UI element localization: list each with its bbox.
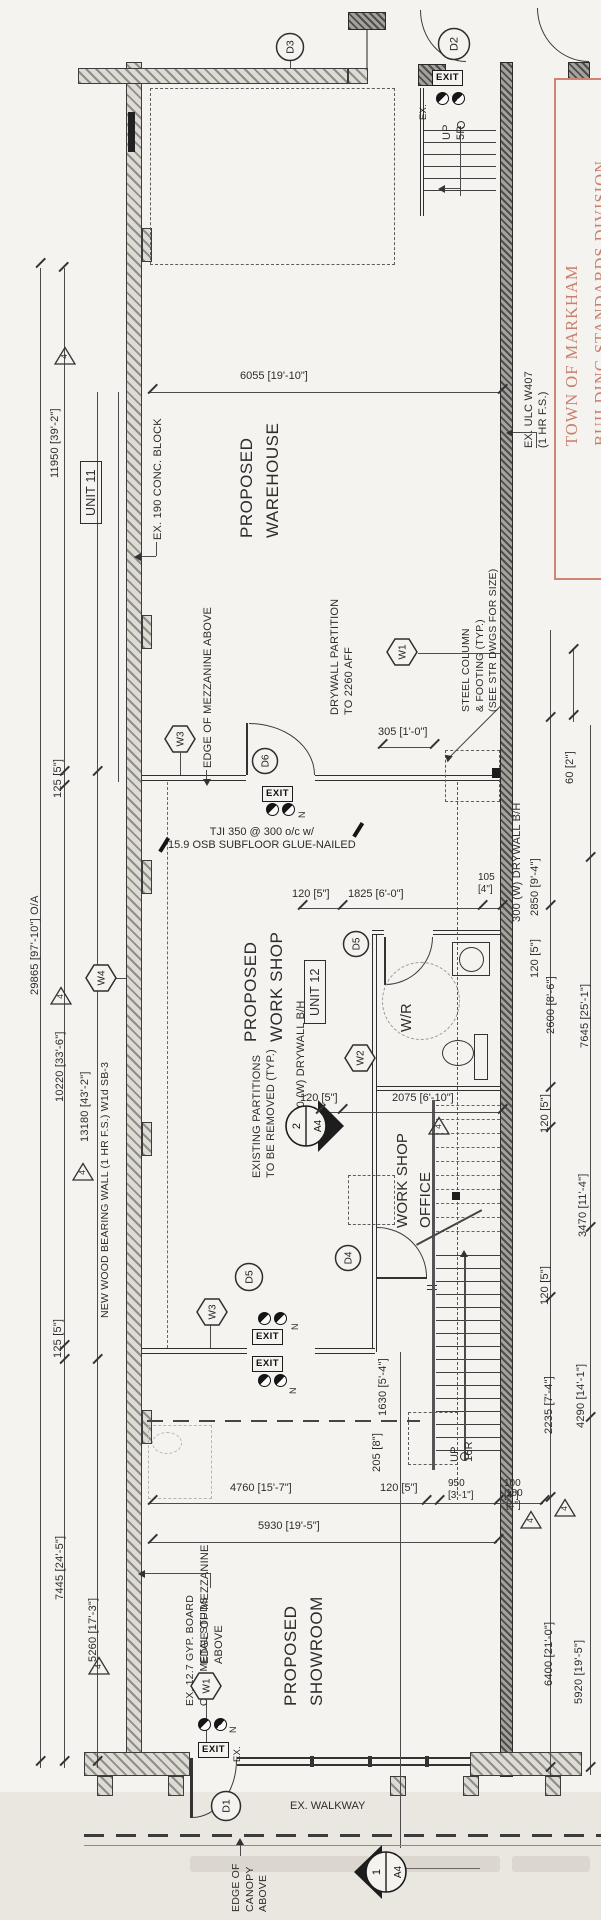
exit-light <box>282 803 295 816</box>
exit-light <box>452 92 465 105</box>
dim-2075: 2075 [6'-10"] <box>392 1092 454 1105</box>
dim-60: 60 [2"] <box>563 751 577 784</box>
door-tag-d2-label: D2 <box>449 37 461 51</box>
exit-light <box>258 1374 271 1387</box>
note-existing-partitions: EXISTING PARTITIONS TO BE REMOVED (TYP.) <box>250 1049 279 1178</box>
revision-label: 4 <box>525 1518 535 1523</box>
stair-tread <box>436 1268 500 1269</box>
revision-triangle: 4 <box>72 1162 94 1182</box>
leader-arrow <box>203 779 211 786</box>
wall-tag-w4: W4 <box>85 964 117 992</box>
wall-tag-w1b: W1 <box>190 1672 222 1700</box>
revision-label: 4 <box>559 1506 569 1511</box>
revision-label: 4 <box>93 1664 103 1669</box>
partition-showroom <box>315 1348 375 1354</box>
leader <box>156 542 157 556</box>
mezzanine-edge-line-showroom <box>147 1420 420 1422</box>
dim-950: 950 [3'-1"] <box>448 1478 473 1502</box>
steel-column <box>452 1192 460 1200</box>
top-stair-arrow <box>438 185 445 193</box>
storefront-mullion <box>368 1756 372 1767</box>
revision-triangle: 4 <box>54 346 76 366</box>
dim-line <box>573 650 574 722</box>
note-tji: TJI 350 @ 300 o/c w/ 15.9 OSB SUBFLOOR G… <box>168 826 356 852</box>
dim-line <box>590 725 591 1775</box>
note-mezzanine-above: EDGE OF MEZZANINE ABOVE <box>201 607 215 768</box>
stair-tread <box>436 1320 500 1321</box>
revision-label: 4 <box>77 1170 87 1175</box>
dim-2235: 2235 [7'-4"] <box>542 1376 556 1434</box>
dim-line <box>550 630 551 1775</box>
leader <box>290 61 291 69</box>
revision-label: 4 <box>433 1124 443 1129</box>
vestibule-wall-line <box>366 30 368 68</box>
partition-warehouse <box>142 775 246 781</box>
dim-7445: 7445 [24'-5"] <box>53 1536 67 1600</box>
leader-arrow <box>138 1570 145 1578</box>
wall-tag-w3b: W3 <box>196 1298 228 1326</box>
washroom-top-wall <box>433 930 500 935</box>
ex-label: EX. <box>418 104 430 120</box>
watermark <box>190 1856 370 1872</box>
top-stair-arrow-line <box>444 188 460 189</box>
stair-tread <box>436 1372 500 1373</box>
stair-tread <box>436 1333 500 1334</box>
door-tag-d5-label: D5 <box>352 937 363 950</box>
door-d4-leaf <box>377 1277 427 1279</box>
stair-tread <box>436 1147 500 1148</box>
dim-line <box>150 1503 543 1504</box>
exit-light <box>198 1718 211 1731</box>
room-label-warehouse: PROPOSED WAREHOUSE <box>234 423 285 538</box>
dim-120: 120 [5"] <box>380 1482 418 1495</box>
watermark <box>512 1856 590 1872</box>
door-tag-d1-label: D1 <box>221 1799 233 1813</box>
wall-tab <box>390 1776 406 1796</box>
dim-13180: 13180 [43'-2"] <box>78 1071 92 1142</box>
stair-tread <box>436 1346 500 1347</box>
stair-up-16r: UP 16R <box>448 1441 477 1462</box>
note-canopy: EDGE OF CANOPY ABOVE <box>230 1863 271 1912</box>
door-tag-d4-label: D4 <box>344 1251 355 1264</box>
stair-tread <box>436 1161 500 1162</box>
wall-tab <box>463 1776 479 1796</box>
note-walkway: EX. WALKWAY <box>290 1800 365 1813</box>
exit-light <box>274 1312 287 1325</box>
exit-sign: EXIT <box>432 70 463 86</box>
leader <box>210 1324 211 1348</box>
dim-5930: 5930 [19'-5"] <box>258 1520 320 1533</box>
revision-triangle: 4 <box>520 1510 542 1530</box>
leader-arrow <box>236 1838 244 1845</box>
existing-fixture-dashed <box>152 1432 182 1454</box>
dim-305: 305 [1'-0"] <box>378 726 427 739</box>
stair-tread <box>436 1307 500 1308</box>
column-centerline <box>457 782 458 1500</box>
door-tag-d3-label: D3 <box>285 40 297 54</box>
stair-tread <box>436 1175 500 1176</box>
section-1-number: 1 <box>371 1869 383 1875</box>
door-tag-d6: D6 <box>251 747 279 775</box>
mezzanine-edge-line <box>167 782 168 1348</box>
wall-wedge <box>128 112 135 152</box>
stair-arrow-up <box>460 1250 468 1257</box>
room-label-office: WORK SHOP OFFICE <box>392 1133 437 1228</box>
door-tag-d5b: D5 <box>234 1262 264 1292</box>
north-label: N <box>297 811 309 818</box>
section-2-sheet: A4 <box>313 1119 324 1132</box>
note-bearing-wall: NEW WOOD BEARING WALL (1 HR F.S.) W1d SB… <box>99 1062 113 1318</box>
revision-triangle: 4 <box>428 1116 450 1136</box>
wall-tag-w3: W3 <box>164 725 196 753</box>
exit-light <box>274 1374 287 1387</box>
leader-arrow <box>134 553 141 561</box>
door-top-right-swing <box>537 8 589 62</box>
dim-11950: 11950 [39'-2"] <box>48 408 62 478</box>
wall-tag-w1b-label: W1 <box>202 1678 213 1693</box>
dim-125: 125 [5"] <box>51 759 65 798</box>
dim-1825: 1825 [6'-0"] <box>348 888 404 901</box>
revision-triangle: 4 <box>554 1498 576 1518</box>
stair-tread <box>436 1294 500 1295</box>
north-label: N <box>290 1323 302 1330</box>
note-drywall-partition: DRYWALL PARTITION TO 2260 AFF <box>328 599 357 715</box>
dim-line <box>40 268 41 1768</box>
wall-tab <box>545 1776 561 1796</box>
room-label-workshop: PROPOSED WORK SHOP <box>238 932 289 1042</box>
dim-2600: 2600 [8'-6"] <box>544 976 558 1034</box>
note-conc-block: EX. 190 CONC. BLOCK <box>151 418 165 540</box>
stair-tread <box>436 1385 500 1386</box>
dim-4760: 4760 [15'-7"] <box>230 1482 292 1495</box>
revision-label: 4 <box>55 994 65 999</box>
stair-tread <box>436 1359 500 1360</box>
room-label-showroom: PROPOSED SHOWROOM <box>278 1596 329 1706</box>
dim-tick <box>35 258 45 268</box>
door-d6-leaf <box>246 723 248 775</box>
dim-5920: 5920 [19'-5"] <box>572 1640 586 1704</box>
north-label: N <box>288 1387 300 1394</box>
stair-tread <box>436 1203 500 1204</box>
stair-tread <box>436 1398 500 1399</box>
leader <box>206 770 207 779</box>
section-marker-2-a4: 2 A4 <box>284 1104 328 1148</box>
wall-left <box>126 62 142 1760</box>
dim-line <box>150 392 500 393</box>
section-cut-line <box>400 1352 401 1848</box>
stair-centerline <box>464 1255 466 1460</box>
dim-line <box>97 392 98 1768</box>
dim-120: 120 [5"] <box>528 939 542 978</box>
dim-1630: 1630 [5'-4"] <box>376 1358 390 1416</box>
room-label-washroom: W/R <box>398 1003 417 1032</box>
door-d4-swing <box>377 1227 427 1277</box>
door-tag-d5: D5 <box>342 930 370 958</box>
unit11-label: UNIT 11 <box>80 461 102 524</box>
leader-arrow <box>506 429 513 437</box>
dim-line <box>318 1112 500 1113</box>
stair-tread <box>436 1255 500 1256</box>
exit-light <box>266 803 279 816</box>
wall-vestibule-stub <box>348 12 386 30</box>
canopy-dashed-line <box>84 1834 601 1837</box>
dim-100: 100 [4"] <box>504 1478 521 1502</box>
storefront-mullion <box>310 1756 314 1767</box>
wall-tag-w1-label: W1 <box>398 644 409 659</box>
wall-bottom-right <box>470 1752 582 1776</box>
wall-top <box>78 68 348 84</box>
door-tag-d5b-label: D5 <box>244 1270 256 1284</box>
storefront-mullion <box>425 1756 429 1767</box>
canopy-thin-line <box>84 1845 601 1846</box>
stair-tread <box>436 1189 500 1190</box>
dim-line <box>150 1542 497 1543</box>
washroom-office-wall <box>377 1086 500 1091</box>
exit-sign: EXIT <box>252 1329 283 1345</box>
note-ulc-wall: EX. ULC W407 (1 HR F.S.) <box>522 371 551 448</box>
dim-line <box>300 908 500 909</box>
revision-triangle: 4 <box>50 986 72 1006</box>
dim-125: 125 [5"] <box>51 1319 65 1358</box>
approval-stamp-text: TOWN OF MARKHAM BUILDING STANDARDS DIVIS… <box>558 160 601 446</box>
wall-tab <box>168 1776 184 1796</box>
wall-tag-w3-label: W3 <box>176 731 187 746</box>
dim-overall: 29865 [97'-10"] O/A <box>28 895 42 995</box>
dim-6055: 6055 [19'-10"] <box>240 370 308 383</box>
dim-5260: 5260 [17'-3"] <box>86 1598 100 1662</box>
floor-plan-canvas: 29865 [97'-10"] O/A 11950 [39'-2"] 125 [… <box>0 0 601 1920</box>
wall-tag-w2-label: W2 <box>356 1050 367 1065</box>
toilet <box>442 1040 474 1066</box>
exit-light <box>436 92 449 105</box>
dim-120: 120 [5"] <box>292 888 330 901</box>
washroom-top-stub <box>372 930 384 935</box>
office-left-wall-lower <box>372 1290 377 1352</box>
toilet-tank <box>474 1034 488 1080</box>
door-tag-d6-label: D6 <box>261 754 272 767</box>
mezzanine-dashed-outline <box>150 88 395 265</box>
exit-sign: EXIT <box>252 1356 283 1372</box>
exit-sign: EXIT <box>198 1742 229 1758</box>
steel-column-footing-dashed <box>348 1175 395 1225</box>
north-label: N <box>228 1726 240 1733</box>
door-tag-d2: D2 <box>437 27 471 61</box>
turning-circle-dashed <box>382 962 460 1040</box>
wall-tab <box>97 1776 113 1796</box>
steel-column <box>492 768 500 778</box>
stair-up-5r: UP 5R <box>440 124 469 140</box>
stair-tread <box>436 1281 500 1282</box>
dim-10220: 10220 [33'-6"] <box>53 1031 67 1102</box>
exit-light <box>214 1718 227 1731</box>
exit-light <box>258 1312 271 1325</box>
leader <box>140 556 156 557</box>
sink-bowl <box>459 947 484 972</box>
wall-top-stub <box>348 68 368 84</box>
dim-7645: 7645 [25'-1"] <box>578 984 592 1048</box>
stair-tread <box>436 1231 500 1232</box>
door-tag-d4: D4 <box>334 1244 362 1272</box>
door-tag-d3: D3 <box>275 32 305 62</box>
ex-label: EX. <box>232 1746 244 1762</box>
note-steel-column: STEEL COLUMN & FOOTING (TYP.) (SEE STR D… <box>460 569 501 712</box>
revision-triangle: 4 <box>88 1656 110 1676</box>
section-2-number: 2 <box>291 1123 303 1129</box>
section-marker-1-a4: 1 A4 <box>364 1850 408 1894</box>
door-tag-d1: D1 <box>210 1790 242 1822</box>
dim-205: 205 [8"] <box>370 1433 384 1472</box>
wall-tag-w4-label: W4 <box>97 970 108 985</box>
wall-pilaster <box>142 615 152 649</box>
wall-pilaster <box>142 1122 152 1156</box>
dim-line <box>118 392 119 782</box>
storefront-window <box>237 1757 470 1766</box>
leader <box>180 753 181 775</box>
wall-tag-w3b-label: W3 <box>208 1304 219 1319</box>
note-drywall-bh-300: 300 (W) DRYWALL B/H <box>510 802 524 922</box>
dim-2850: 2850 [9'-4"] <box>528 858 542 916</box>
wall-tag-w1: W1 <box>386 638 418 666</box>
exit-sign: EXIT <box>262 786 293 802</box>
wall-tag-w2: W2 <box>344 1044 376 1072</box>
wall-pilaster <box>142 860 152 894</box>
revision-label: 4 <box>59 354 69 359</box>
dim-tick <box>429 739 439 749</box>
dim-105: 105 [4"] <box>478 872 495 896</box>
dim-6400: 6400 [21'-0"] <box>542 1622 556 1686</box>
section-1-sheet: A4 <box>393 1865 404 1878</box>
dim-line <box>380 747 432 748</box>
leader <box>116 978 126 979</box>
partition-showroom <box>142 1348 247 1354</box>
